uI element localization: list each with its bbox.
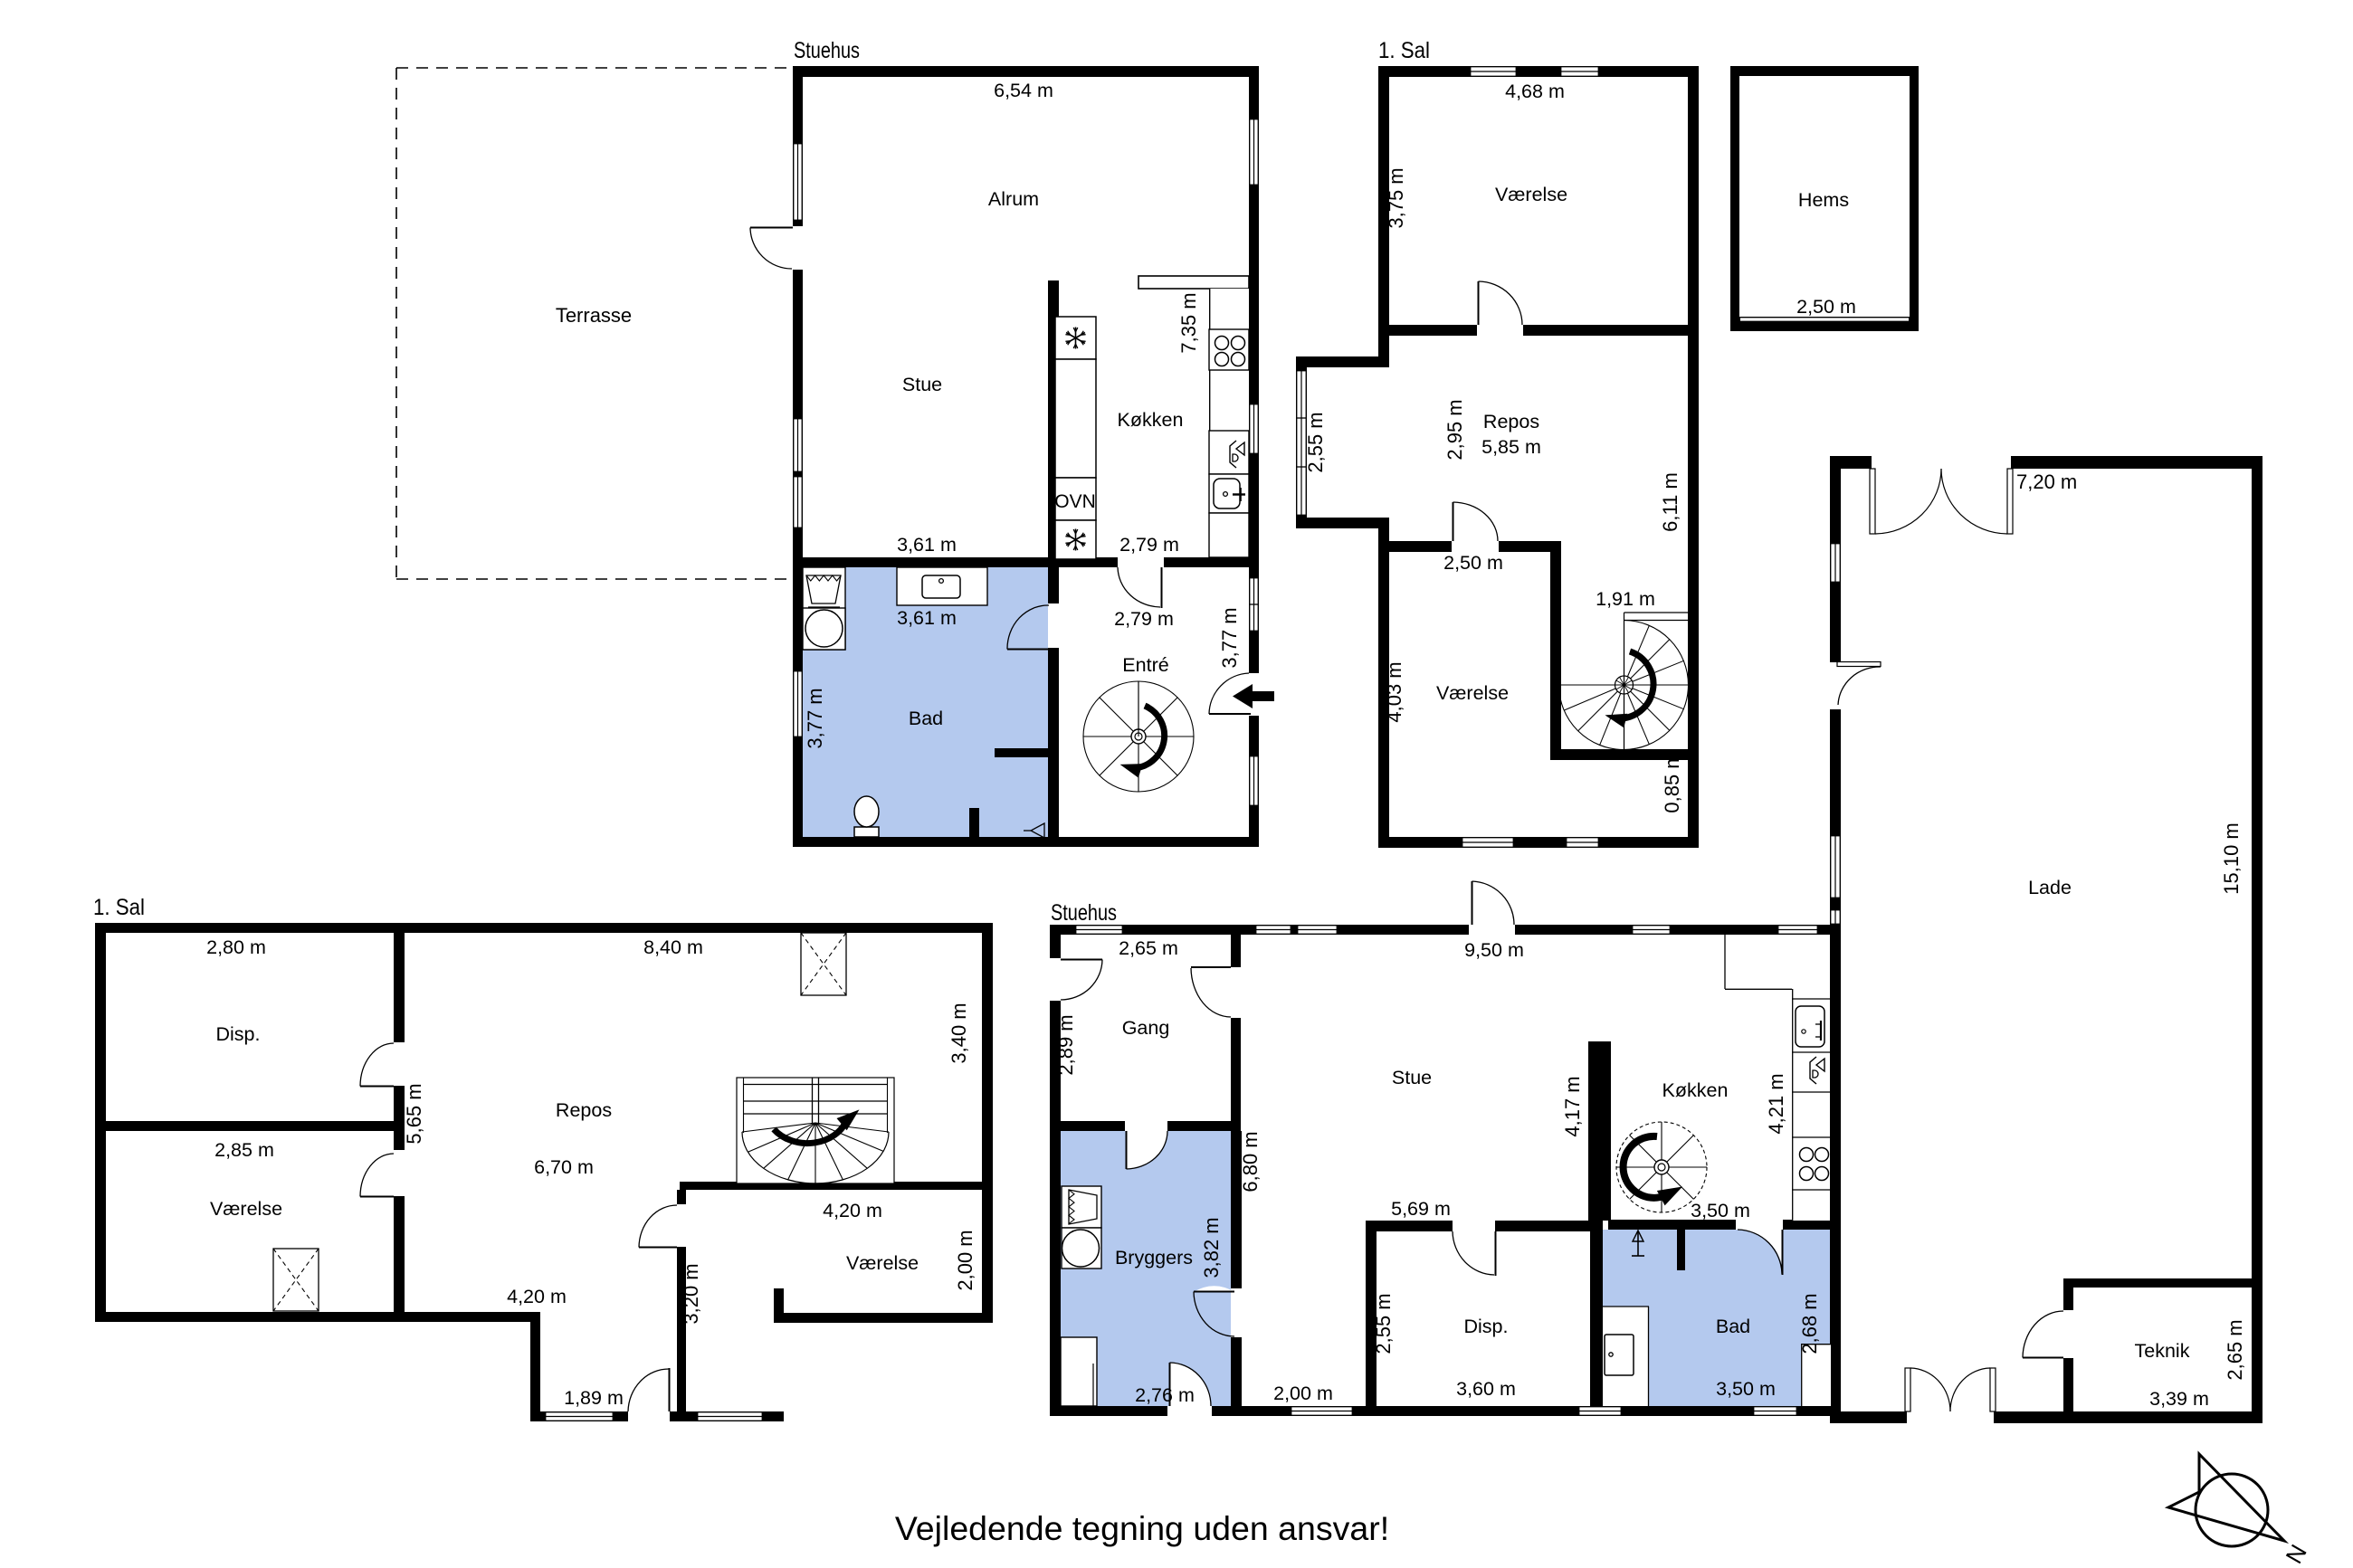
svg-text:2,00 m: 2,00 m (954, 1230, 976, 1290)
svg-text:Værelse: Værelse (210, 1198, 282, 1220)
svg-text:3,77 m: 3,77 m (1218, 607, 1241, 668)
svg-text:3,60 m: 3,60 m (1456, 1378, 1516, 1400)
svg-text:Bad: Bad (909, 708, 943, 729)
svg-text:3,50 m: 3,50 m (1691, 1200, 1750, 1221)
svg-text:Repos: Repos (1483, 411, 1539, 432)
svg-text:4,20 m: 4,20 m (507, 1286, 567, 1307)
svg-text:Disp.: Disp. (216, 1023, 261, 1045)
svg-text:5,69 m: 5,69 m (1391, 1198, 1451, 1220)
svg-text:2,65 m: 2,65 m (1119, 937, 1178, 959)
svg-text:2,79 m: 2,79 m (1119, 534, 1179, 556)
svg-text:Alrum: Alrum (988, 188, 1039, 210)
svg-text:3,75 m: 3,75 m (1385, 167, 1407, 228)
svg-text:5,65 m: 5,65 m (403, 1083, 425, 1144)
svg-text:4,68 m: 4,68 m (1505, 81, 1565, 102)
svg-text:Hems: Hems (1798, 189, 1849, 211)
svg-text:5,85 m: 5,85 m (1481, 436, 1541, 458)
svg-text:4,21 m: 4,21 m (1765, 1073, 1787, 1134)
svg-text:4,17 m: 4,17 m (1561, 1076, 1584, 1136)
svg-text:Entré: Entré (1122, 654, 1168, 676)
svg-text:Stue: Stue (1392, 1067, 1432, 1088)
svg-text:7,35 m: 7,35 m (1177, 292, 1200, 353)
svg-text:3,82 m: 3,82 m (1200, 1217, 1223, 1278)
svg-text:Stuehus: Stuehus (1051, 900, 1117, 926)
svg-text:8,40 m: 8,40 m (643, 936, 703, 958)
svg-text:3,77 m: 3,77 m (804, 688, 826, 748)
svg-text:2,55 m: 2,55 m (1304, 412, 1327, 472)
svg-text:2,55 m: 2,55 m (1372, 1293, 1395, 1354)
svg-text:7,20 m: 7,20 m (2016, 470, 2077, 493)
svg-text:3,40 m: 3,40 m (948, 1003, 970, 1063)
svg-text:3,20 m: 3,20 m (680, 1263, 702, 1324)
svg-text:Værelse: Værelse (1436, 682, 1509, 704)
svg-text:3,61 m: 3,61 m (897, 607, 957, 629)
svg-text:Disp.: Disp. (1464, 1316, 1509, 1337)
svg-text:1. Sal: 1. Sal (1378, 38, 1430, 63)
svg-text:Gang: Gang (1122, 1017, 1170, 1039)
svg-text:6,80 m: 6,80 m (1239, 1131, 1262, 1192)
svg-text:Værelse: Værelse (1495, 184, 1567, 205)
svg-text:6,70 m: 6,70 m (534, 1156, 594, 1178)
svg-text:1,91 m: 1,91 m (1596, 588, 1655, 610)
svg-text:6,11 m: 6,11 m (1659, 472, 1681, 532)
svg-text:Bryggers: Bryggers (1115, 1247, 1193, 1269)
svg-text:2,50 m: 2,50 m (1796, 296, 1856, 318)
svg-text:3,50 m: 3,50 m (1716, 1378, 1776, 1400)
svg-text:Bad: Bad (1716, 1316, 1750, 1337)
svg-text:2,79 m: 2,79 m (1114, 608, 1174, 630)
svg-text:Lade: Lade (2028, 877, 2072, 898)
svg-text:15,10 m: 15,10 m (2220, 822, 2243, 895)
svg-text:2,80 m: 2,80 m (206, 936, 266, 958)
svg-text:2,00 m: 2,00 m (1273, 1383, 1333, 1404)
svg-text:Værelse: Værelse (846, 1252, 919, 1274)
svg-text:2,65 m: 2,65 m (2224, 1319, 2246, 1380)
svg-text:9,50 m: 9,50 m (1464, 939, 1524, 961)
svg-text:Terrasse: Terrasse (556, 304, 632, 327)
svg-text:0,85 m: 0,85 m (1661, 752, 1683, 813)
svg-text:Køkken: Køkken (1118, 409, 1184, 431)
svg-text:4,03 m: 4,03 m (1383, 661, 1405, 722)
svg-text:Teknik: Teknik (2135, 1340, 2190, 1362)
svg-text:OVN: OVN (1054, 491, 1096, 512)
svg-text:3,39 m: 3,39 m (2149, 1388, 2209, 1410)
svg-text:Køkken: Køkken (1662, 1079, 1729, 1101)
svg-text:2,50 m: 2,50 m (1443, 552, 1503, 574)
svg-text:2,85 m: 2,85 m (214, 1139, 274, 1161)
svg-text:6,54 m: 6,54 m (994, 80, 1053, 101)
svg-text:1. Sal: 1. Sal (93, 895, 145, 920)
svg-text:Stuehus: Stuehus (794, 38, 860, 63)
svg-text:4,20 m: 4,20 m (823, 1200, 882, 1221)
svg-text:3,61 m: 3,61 m (897, 534, 957, 556)
svg-text:2,76 m: 2,76 m (1135, 1384, 1195, 1406)
svg-text:2,68 m: 2,68 m (1798, 1293, 1821, 1354)
svg-text:2,89 m: 2,89 m (1054, 1014, 1077, 1075)
svg-text:1,89 m: 1,89 m (564, 1387, 624, 1409)
svg-text:Repos: Repos (556, 1099, 612, 1121)
svg-text:2,95 m: 2,95 m (1443, 399, 1466, 460)
svg-text:Stue: Stue (902, 374, 942, 395)
svg-text:Vejledende tegning uden ansvar: Vejledende tegning uden ansvar! (895, 1509, 1389, 1547)
